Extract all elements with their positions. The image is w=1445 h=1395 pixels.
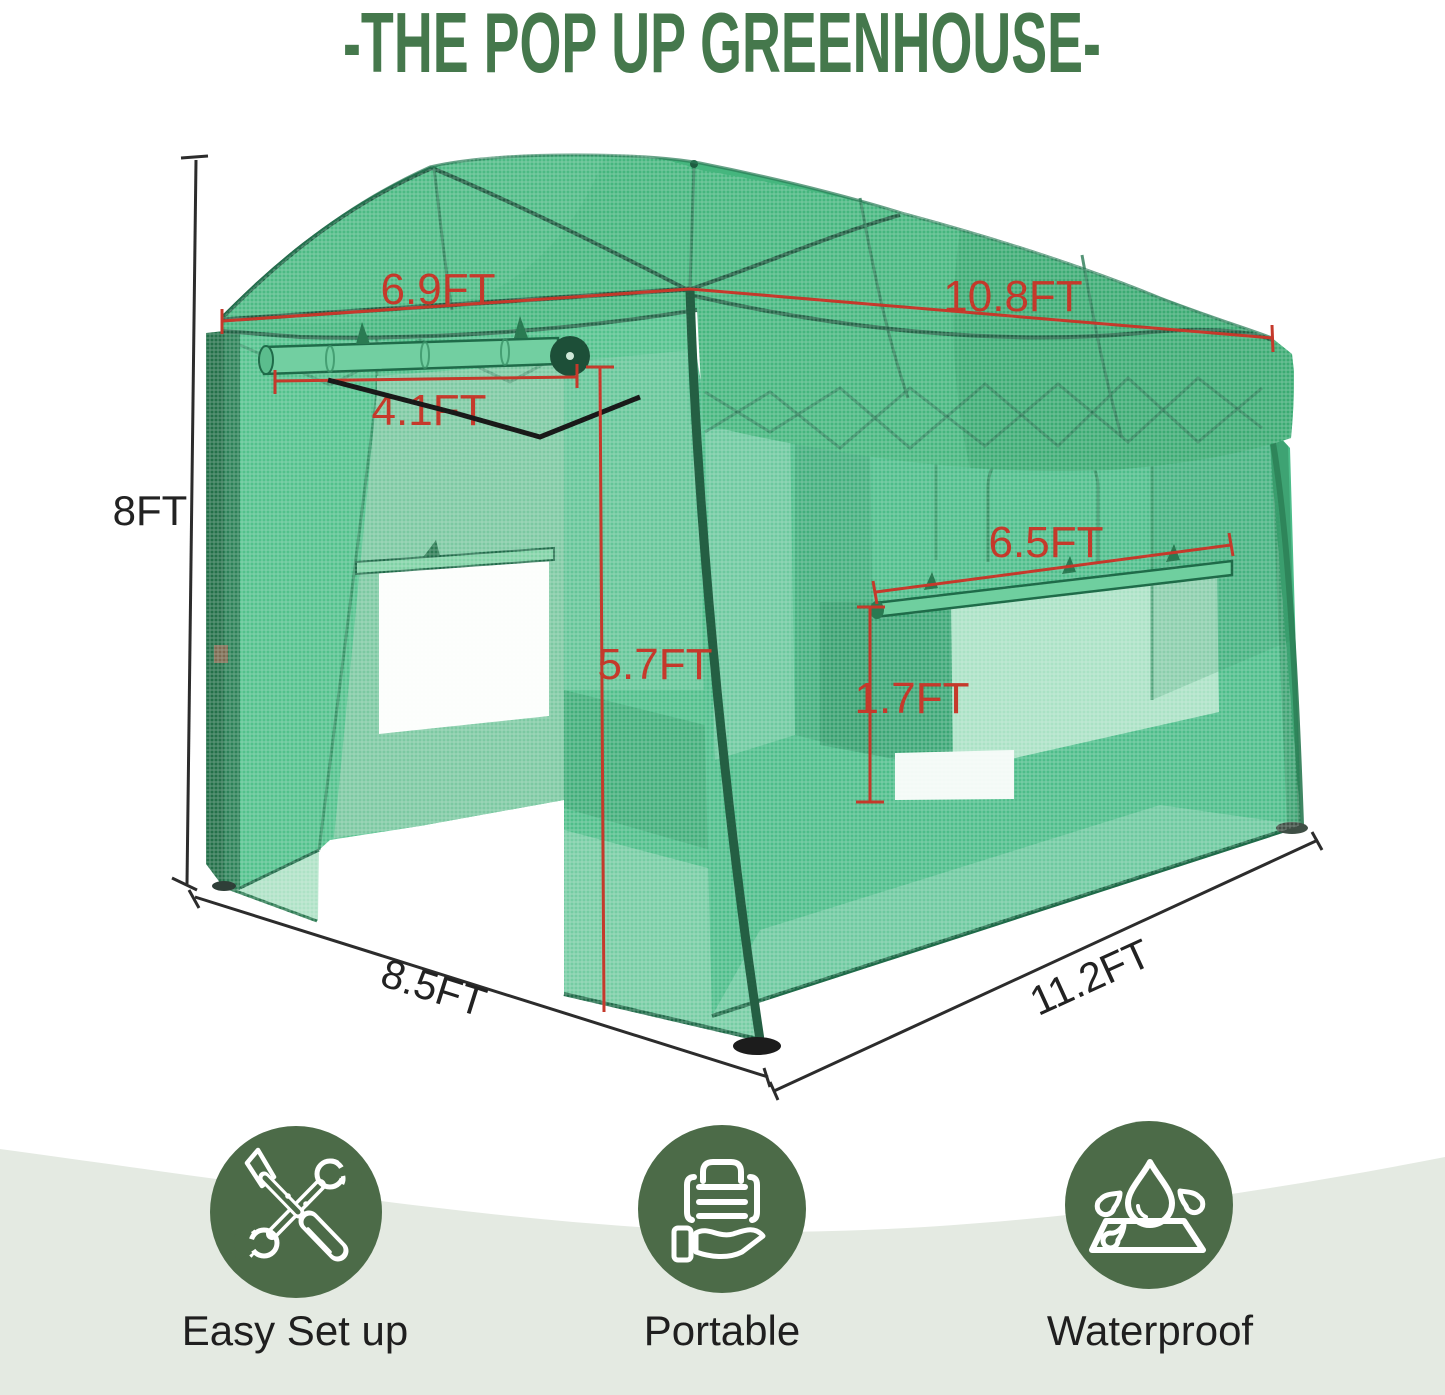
svg-text:-THE POP UP GREENHOUSE-: -THE POP UP GREENHOUSE- — [343, 0, 1101, 91]
svg-text:5.7FT: 5.7FT — [598, 640, 713, 689]
svg-text:1.7FT: 1.7FT — [855, 674, 970, 723]
svg-text:Portable: Portable — [644, 1307, 800, 1354]
svg-text:Easy Set up: Easy Set up — [182, 1307, 408, 1354]
svg-text:6.5FT: 6.5FT — [989, 518, 1104, 567]
svg-text:10.8FT: 10.8FT — [943, 272, 1082, 321]
svg-text:6.9FT: 6.9FT — [381, 265, 496, 314]
svg-text:8FT: 8FT — [113, 487, 188, 534]
svg-text:Waterproof: Waterproof — [1047, 1307, 1254, 1354]
